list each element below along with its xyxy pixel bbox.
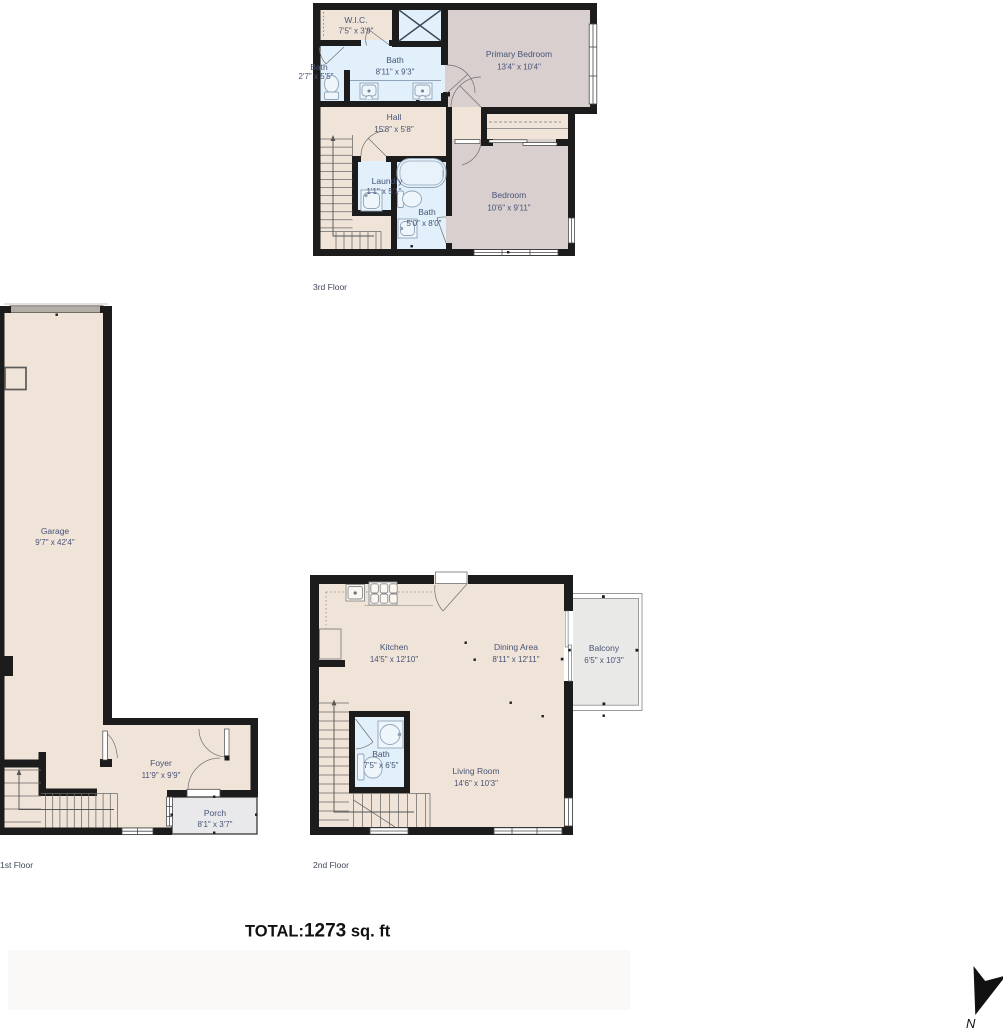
svg-text:1'1" x 5'1": 1'1" x 5'1" [367, 187, 402, 196]
svg-text:W.I.C.: W.I.C. [344, 15, 367, 25]
svg-text:14'5" x 12'10": 14'5" x 12'10" [370, 655, 418, 664]
svg-text:Bedroom: Bedroom [492, 190, 527, 200]
svg-text:15'8" x 5'8": 15'8" x 5'8" [374, 125, 414, 134]
svg-text:9'7" x 42'4": 9'7" x 42'4" [35, 538, 75, 547]
svg-text:10'6" x 9'11": 10'6" x 9'11" [487, 204, 530, 213]
svg-text:Living Room: Living Room [452, 766, 499, 776]
svg-text:Dining Area: Dining Area [494, 642, 538, 652]
svg-text:TOTAL:1273 sq. ft: TOTAL:1273 sq. ft [245, 921, 391, 942]
svg-text:14'6" x 10'3": 14'6" x 10'3" [454, 779, 498, 788]
svg-text:7'5" x 6'5": 7'5" x 6'5" [364, 761, 399, 770]
svg-text:Bath: Bath [372, 749, 390, 759]
svg-text:Bath: Bath [418, 207, 436, 217]
svg-text:8'11" x 12'11": 8'11" x 12'11" [492, 655, 539, 664]
svg-text:Porch: Porch [204, 808, 226, 818]
svg-text:Bath: Bath [386, 55, 404, 65]
svg-text:7'5" x 3'9": 7'5" x 3'9" [339, 27, 374, 36]
svg-text:2'7" x 5'5": 2'7" x 5'5" [299, 72, 334, 81]
svg-text:5'0" x 8'0": 5'0" x 8'0" [407, 219, 442, 228]
svg-text:Kitchen: Kitchen [380, 642, 409, 652]
svg-text:Balcony: Balcony [589, 643, 620, 653]
svg-text:Primary Bedroom: Primary Bedroom [486, 49, 552, 59]
svg-text:8'11" x 9'3": 8'11" x 9'3" [376, 68, 415, 77]
svg-text:Bath: Bath [310, 62, 328, 72]
svg-text:Garage: Garage [41, 526, 70, 536]
svg-text:1st Floor: 1st Floor [0, 860, 33, 870]
svg-text:8'1" x 3'7": 8'1" x 3'7" [198, 820, 233, 829]
svg-text:Foyer: Foyer [150, 758, 172, 768]
svg-text:11'9" x 9'9": 11'9" x 9'9" [142, 771, 181, 780]
svg-text:Hall: Hall [387, 112, 402, 122]
svg-text:2nd Floor: 2nd Floor [313, 860, 349, 870]
svg-text:3rd Floor: 3rd Floor [313, 282, 347, 292]
svg-text:13'4" x 10'4": 13'4" x 10'4" [497, 63, 541, 72]
svg-text:Laundry: Laundry [372, 176, 403, 186]
svg-text:N: N [966, 1016, 976, 1029]
svg-text:6'5" x 10'3": 6'5" x 10'3" [584, 656, 624, 665]
